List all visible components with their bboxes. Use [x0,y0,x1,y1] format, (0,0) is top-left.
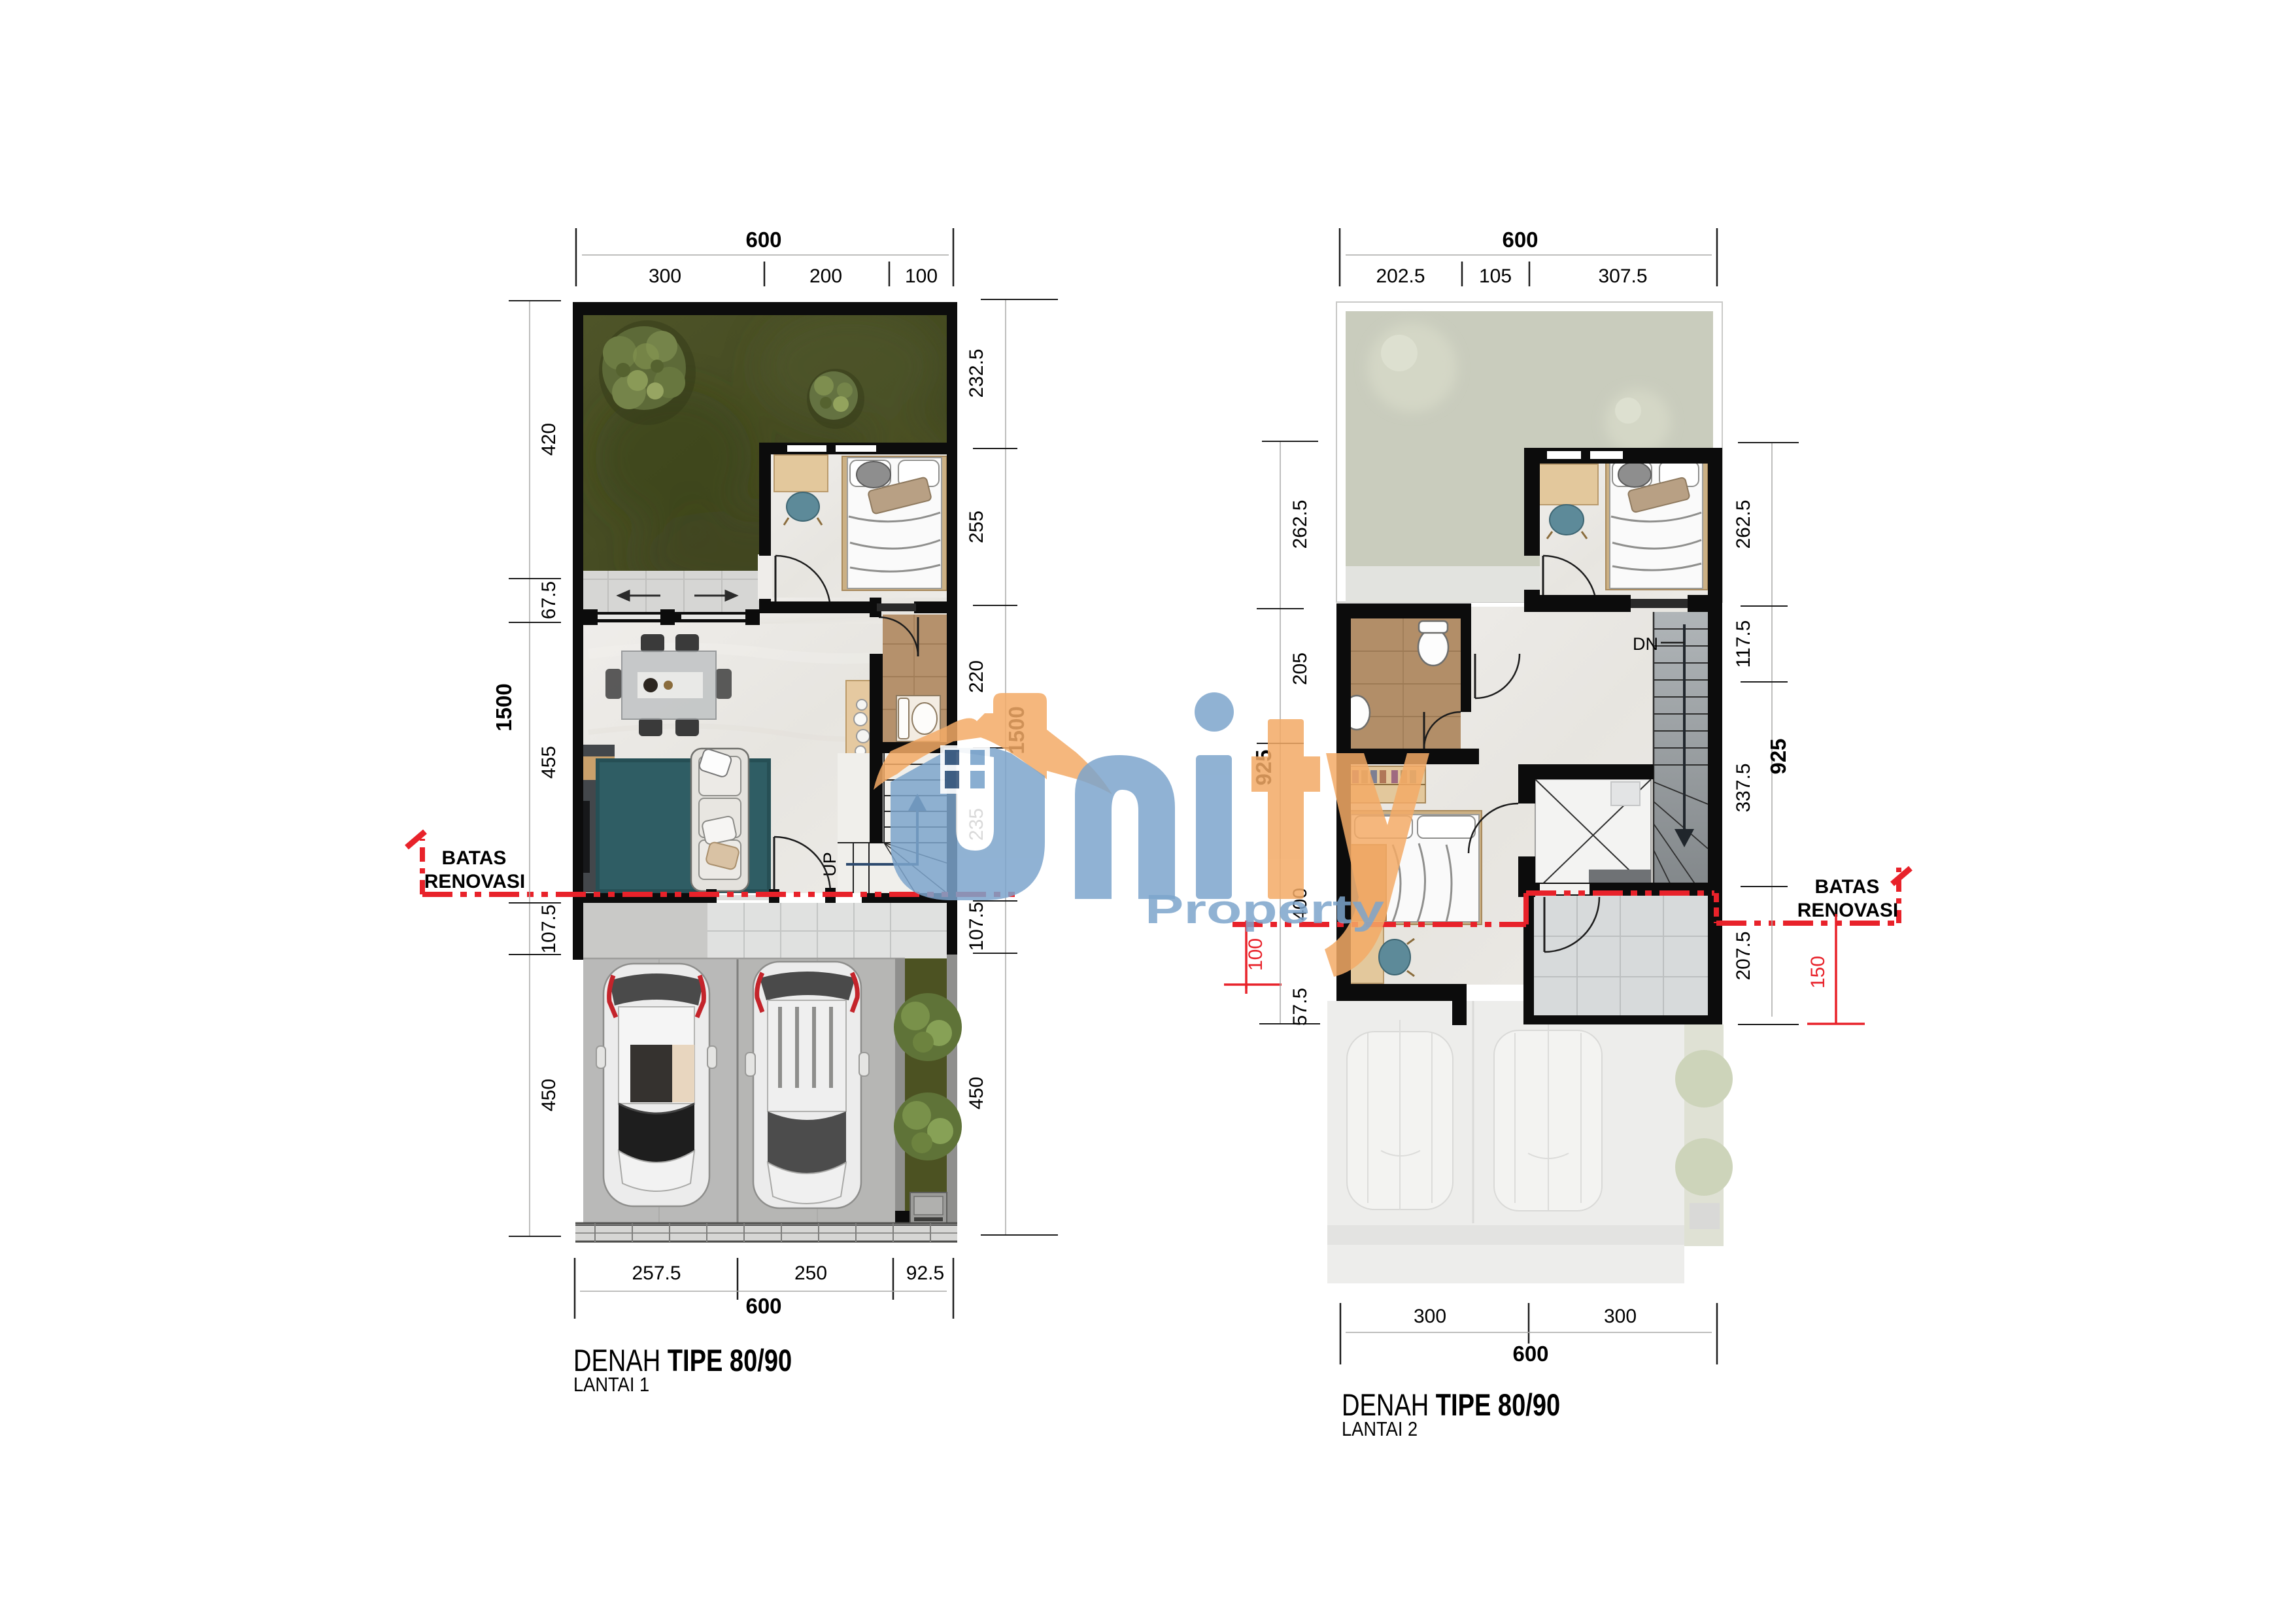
svg-text:205: 205 [1289,652,1311,685]
svg-text:57.5: 57.5 [1289,988,1311,1026]
svg-text:300: 300 [649,265,681,287]
svg-text:925: 925 [1766,738,1790,774]
svg-text:220: 220 [966,660,987,693]
svg-text:BATAS: BATAS [1815,876,1880,898]
svg-text:DENAH TIPE 80/90: DENAH TIPE 80/90 [1342,1388,1560,1423]
svg-text:250: 250 [794,1262,827,1284]
svg-text:Property: Property [1145,887,1385,932]
svg-text:107.5: 107.5 [966,902,987,951]
svg-text:262.5: 262.5 [1733,499,1754,549]
svg-text:300: 300 [1604,1306,1637,1327]
svg-text:BATAS: BATAS [442,847,507,869]
svg-text:67.5: 67.5 [538,581,560,619]
svg-text:150: 150 [1807,956,1829,989]
svg-text:600: 600 [1512,1342,1548,1366]
svg-text:337.5: 337.5 [1733,763,1754,812]
svg-text:600: 600 [745,1294,781,1318]
svg-text:600: 600 [1502,228,1538,252]
svg-text:DENAH TIPE 80/90: DENAH TIPE 80/90 [573,1344,792,1378]
svg-text:100: 100 [1245,938,1266,971]
svg-text:420: 420 [538,423,560,456]
svg-text:300: 300 [1414,1306,1446,1327]
svg-text:107.5: 107.5 [538,904,560,953]
svg-text:LANTAI 1: LANTAI 1 [573,1374,649,1396]
svg-text:DN: DN [1633,634,1658,654]
svg-text:307.5: 307.5 [1598,265,1647,287]
svg-text:1500: 1500 [492,683,516,731]
svg-text:200: 200 [809,265,842,287]
svg-text:LANTAI 2: LANTAI 2 [1342,1418,1418,1440]
svg-text:92.5: 92.5 [906,1262,944,1284]
svg-text:450: 450 [538,1079,560,1111]
svg-text:232.5: 232.5 [966,348,987,398]
svg-text:117.5: 117.5 [1733,620,1754,668]
svg-text:255: 255 [966,511,987,543]
svg-text:100: 100 [905,265,938,287]
svg-text:202.5: 202.5 [1376,265,1425,287]
svg-text:RENOVASI: RENOVASI [424,871,525,892]
svg-text:450: 450 [966,1077,987,1109]
svg-text:455: 455 [538,746,560,779]
svg-text:105: 105 [1479,265,1512,287]
svg-text:262.5: 262.5 [1289,499,1311,549]
svg-text:RENOVASI: RENOVASI [1797,900,1898,921]
svg-text:257.5: 257.5 [632,1262,681,1284]
svg-text:207.5: 207.5 [1733,931,1754,980]
svg-text:600: 600 [745,228,781,252]
